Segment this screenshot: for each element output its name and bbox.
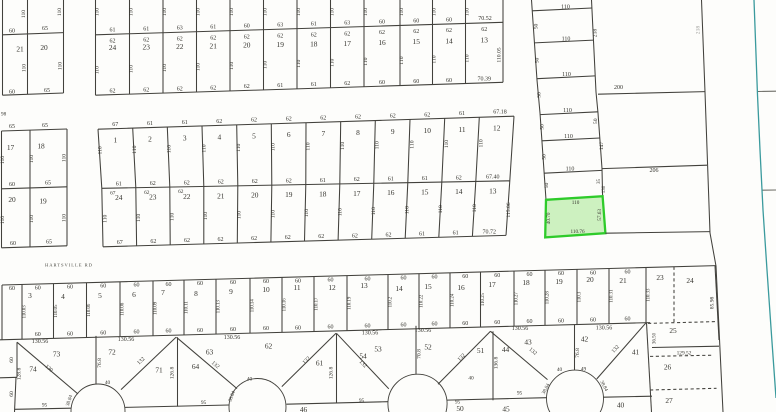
svg-text:21: 21: [619, 276, 627, 285]
svg-text:22: 22: [183, 192, 191, 201]
svg-text:3: 3: [183, 134, 187, 143]
svg-text:20: 20: [251, 191, 259, 200]
svg-text:19: 19: [39, 197, 47, 206]
svg-text:60: 60: [446, 17, 452, 23]
svg-text:52: 52: [424, 342, 432, 351]
svg-text:110: 110: [296, 8, 302, 16]
svg-text:110: 110: [363, 8, 369, 16]
svg-text:110: 110: [57, 8, 63, 16]
svg-text:23: 23: [143, 42, 151, 51]
svg-text:14: 14: [445, 36, 453, 45]
svg-text:62: 62: [218, 237, 224, 243]
svg-text:60: 60: [134, 330, 140, 336]
svg-text:60: 60: [590, 270, 596, 276]
svg-text:110: 110: [375, 141, 381, 149]
svg-text:95: 95: [201, 400, 207, 406]
svg-text:40.70: 40.70: [546, 212, 552, 224]
svg-text:110: 110: [304, 209, 310, 217]
svg-text:61: 61: [210, 25, 216, 31]
svg-text:62: 62: [216, 119, 222, 125]
svg-text:110: 110: [62, 214, 68, 222]
svg-text:23: 23: [656, 273, 664, 282]
svg-text:4: 4: [217, 132, 221, 141]
svg-text:50: 50: [537, 92, 543, 98]
svg-text:60: 60: [413, 18, 419, 24]
svg-text:110: 110: [399, 56, 405, 64]
svg-text:95: 95: [42, 402, 48, 408]
svg-text:60: 60: [263, 326, 269, 332]
svg-text:110: 110: [270, 210, 276, 218]
svg-text:110: 110: [438, 205, 444, 213]
svg-text:110: 110: [196, 8, 202, 16]
svg-text:65: 65: [9, 124, 15, 130]
svg-text:60: 60: [9, 28, 15, 34]
svg-text:60: 60: [432, 275, 438, 281]
svg-text:50: 50: [593, 118, 599, 124]
svg-text:23: 23: [149, 193, 157, 202]
svg-text:13: 13: [481, 35, 489, 44]
svg-text:76.8: 76.8: [575, 348, 581, 358]
svg-text:20: 20: [8, 195, 16, 204]
svg-text:110.06: 110.06: [87, 303, 92, 317]
svg-text:62: 62: [446, 28, 452, 34]
svg-text:40: 40: [468, 376, 474, 382]
svg-text:110: 110: [58, 62, 64, 70]
svg-text:17: 17: [7, 143, 15, 152]
svg-text:50: 50: [542, 154, 548, 160]
svg-text:60: 60: [9, 286, 15, 292]
svg-text:60: 60: [401, 323, 407, 329]
svg-text:5: 5: [98, 291, 102, 300]
svg-text:62: 62: [456, 175, 462, 181]
svg-text:62: 62: [413, 29, 419, 35]
svg-text:110: 110: [102, 215, 108, 223]
svg-text:110: 110: [237, 211, 243, 219]
svg-text:57.63: 57.63: [597, 209, 603, 221]
svg-text:27: 27: [665, 396, 673, 405]
svg-text:60: 60: [462, 274, 468, 280]
svg-text:62: 62: [110, 89, 116, 95]
svg-text:15: 15: [421, 188, 429, 197]
svg-text:61: 61: [277, 83, 283, 89]
svg-text:18: 18: [310, 39, 318, 48]
svg-text:110.13: 110.13: [217, 300, 222, 314]
svg-text:110: 110: [162, 64, 168, 72]
svg-text:1: 1: [113, 136, 117, 145]
svg-text:74: 74: [29, 365, 37, 374]
svg-text:62: 62: [386, 232, 392, 238]
svg-text:62: 62: [244, 84, 250, 90]
svg-text:110: 110: [129, 65, 135, 73]
svg-text:62: 62: [352, 233, 358, 239]
svg-text:62: 62: [177, 36, 183, 42]
svg-text:110: 110: [371, 207, 377, 215]
svg-text:15: 15: [424, 282, 432, 291]
svg-text:50: 50: [540, 124, 546, 130]
svg-text:110: 110: [563, 108, 572, 114]
svg-text:60: 60: [527, 272, 533, 278]
svg-text:130.56: 130.56: [118, 337, 135, 343]
svg-text:110: 110: [340, 142, 346, 150]
svg-text:50: 50: [534, 24, 540, 30]
svg-text:60: 60: [527, 319, 533, 325]
svg-text:110: 110: [229, 62, 235, 70]
svg-text:67: 67: [117, 240, 123, 246]
svg-text:60: 60: [263, 279, 269, 285]
svg-text:110: 110: [62, 154, 68, 162]
svg-text:70.8: 70.8: [416, 349, 422, 359]
svg-text:61: 61: [388, 177, 394, 183]
svg-text:65: 65: [42, 26, 48, 32]
svg-text:50: 50: [535, 58, 541, 64]
svg-text:62: 62: [150, 181, 156, 187]
svg-text:110.2: 110.2: [389, 296, 394, 307]
svg-text:110.24: 110.24: [451, 293, 456, 307]
svg-text:7: 7: [321, 129, 325, 138]
svg-text:70.72: 70.72: [482, 230, 496, 236]
svg-text:60: 60: [9, 182, 15, 188]
svg-text:65: 65: [44, 88, 50, 94]
svg-text:110: 110: [444, 140, 450, 148]
svg-text:110.25: 110.25: [481, 292, 486, 306]
svg-text:73: 73: [53, 350, 61, 359]
svg-text:62: 62: [143, 87, 149, 93]
svg-text:13: 13: [360, 281, 368, 290]
svg-text:62: 62: [184, 238, 190, 244]
svg-text:18: 18: [37, 142, 45, 151]
svg-text:61: 61: [116, 182, 122, 188]
svg-text:61: 61: [453, 230, 459, 236]
svg-text:110.31: 110.31: [610, 289, 615, 303]
svg-text:67.40: 67.40: [486, 175, 500, 181]
svg-text:14: 14: [455, 187, 463, 196]
svg-text:61: 61: [320, 178, 326, 184]
svg-text:21: 21: [217, 191, 225, 200]
svg-text:60: 60: [67, 285, 73, 291]
svg-text:17: 17: [344, 39, 352, 48]
svg-text:62: 62: [177, 86, 183, 92]
svg-text:9: 9: [229, 287, 233, 296]
svg-text:110: 110: [97, 146, 103, 154]
svg-text:110.28: 110.28: [546, 291, 551, 305]
svg-text:110: 110: [564, 134, 573, 140]
svg-text:110: 110: [95, 66, 101, 74]
svg-text:10: 10: [262, 285, 270, 294]
svg-text:61: 61: [459, 111, 465, 117]
svg-text:3: 3: [28, 291, 32, 300]
svg-text:60: 60: [166, 282, 172, 288]
svg-text:13: 13: [489, 186, 497, 195]
svg-text:110: 110: [170, 213, 176, 221]
svg-text:4: 4: [61, 292, 65, 301]
svg-text:62: 62: [252, 179, 258, 185]
svg-text:7: 7: [161, 288, 165, 297]
svg-text:62: 62: [265, 342, 273, 351]
svg-text:60: 60: [365, 277, 371, 283]
svg-text:67: 67: [112, 122, 118, 128]
svg-text:71: 71: [155, 365, 163, 374]
svg-text:60: 60: [230, 280, 236, 286]
svg-text:36.50: 36.50: [653, 332, 658, 344]
svg-text:63: 63: [206, 347, 214, 356]
svg-text:62: 62: [354, 177, 360, 183]
svg-text:129.52: 129.52: [677, 350, 692, 356]
svg-text:60: 60: [494, 273, 500, 279]
svg-text:110: 110: [305, 142, 311, 150]
svg-text:46: 46: [300, 405, 308, 412]
svg-text:60: 60: [35, 285, 41, 291]
svg-text:110: 110: [129, 8, 135, 16]
svg-text:16: 16: [387, 188, 395, 197]
svg-text:63: 63: [277, 23, 283, 29]
svg-text:62: 62: [244, 34, 250, 40]
svg-text:60: 60: [328, 325, 334, 331]
svg-text:130.56: 130.56: [596, 326, 613, 332]
svg-text:60: 60: [197, 281, 203, 287]
svg-text:110: 110: [409, 140, 415, 148]
svg-text:110.05: 110.05: [497, 47, 503, 62]
svg-text:110: 110: [472, 204, 478, 212]
svg-text:110: 110: [432, 55, 438, 63]
svg-text:126.8: 126.8: [329, 367, 335, 380]
svg-text:16: 16: [378, 38, 386, 47]
svg-text:42: 42: [581, 334, 589, 343]
svg-text:110: 110: [95, 8, 101, 16]
svg-text:19: 19: [555, 277, 563, 286]
svg-text:60: 60: [10, 241, 16, 247]
svg-text:61: 61: [311, 22, 317, 28]
svg-text:110: 110: [562, 36, 571, 42]
svg-text:63: 63: [344, 21, 350, 27]
svg-text:24: 24: [686, 276, 694, 285]
svg-text:61: 61: [419, 231, 425, 237]
svg-text:110: 110: [405, 206, 411, 214]
svg-text:110.22: 110.22: [420, 294, 425, 308]
svg-text:12: 12: [493, 124, 501, 133]
svg-text:53: 53: [374, 345, 382, 354]
svg-text:110: 110: [566, 167, 575, 173]
svg-text:10: 10: [424, 126, 432, 135]
svg-text:218: 218: [696, 26, 702, 35]
svg-text:61: 61: [422, 176, 428, 182]
svg-text:62: 62: [344, 31, 350, 37]
svg-text:110.33: 110.33: [647, 288, 652, 302]
svg-text:21: 21: [210, 41, 218, 50]
svg-text:60: 60: [230, 327, 236, 333]
svg-text:60: 60: [295, 278, 301, 284]
svg-text:110: 110: [0, 156, 6, 164]
svg-text:61: 61: [110, 28, 116, 34]
svg-text:60: 60: [67, 331, 73, 337]
svg-text:60: 60: [401, 276, 407, 282]
svg-text:110: 110: [236, 144, 242, 152]
svg-text:9: 9: [391, 127, 395, 136]
svg-text:60: 60: [244, 24, 250, 30]
svg-text:110.3: 110.3: [578, 291, 583, 302]
svg-text:14: 14: [395, 284, 403, 293]
svg-text:130.56: 130.56: [415, 328, 432, 334]
svg-text:110: 110: [572, 200, 580, 206]
svg-text:2: 2: [148, 135, 152, 144]
svg-text:18: 18: [522, 278, 530, 287]
svg-text:22: 22: [176, 42, 184, 51]
svg-text:61: 61: [147, 121, 153, 127]
svg-text:110: 110: [465, 54, 471, 62]
svg-text:54: 54: [359, 352, 367, 361]
svg-text:110.76: 110.76: [570, 229, 584, 235]
svg-text:65: 65: [45, 180, 51, 186]
svg-text:98: 98: [1, 112, 7, 118]
svg-text:40: 40: [557, 367, 563, 373]
svg-text:40: 40: [617, 400, 625, 409]
svg-text:60: 60: [35, 332, 41, 338]
svg-text:110: 110: [271, 143, 277, 151]
svg-text:110: 110: [29, 215, 35, 223]
svg-text:60: 60: [625, 317, 631, 323]
svg-text:21: 21: [16, 45, 24, 54]
svg-text:45: 45: [502, 405, 510, 412]
svg-text:206: 206: [650, 168, 659, 174]
svg-text:62: 62: [286, 179, 292, 185]
svg-text:50: 50: [456, 404, 464, 412]
svg-text:51: 51: [477, 346, 485, 355]
svg-text:110.27: 110.27: [515, 292, 520, 306]
svg-text:62: 62: [210, 85, 216, 91]
svg-text:110: 110: [21, 10, 27, 18]
svg-text:19: 19: [285, 190, 293, 199]
svg-text:110: 110: [132, 145, 138, 153]
svg-text:110.05: 110.05: [54, 304, 59, 318]
svg-text:15: 15: [413, 37, 421, 46]
svg-text:72: 72: [108, 347, 116, 356]
svg-text:110: 110: [29, 155, 35, 163]
svg-text:62: 62: [424, 112, 430, 118]
svg-text:70.39: 70.39: [477, 77, 491, 83]
svg-text:110: 110: [196, 63, 202, 71]
svg-text:17: 17: [353, 189, 361, 198]
svg-text:95: 95: [359, 398, 365, 404]
svg-text:62: 62: [110, 39, 116, 45]
svg-text:65: 65: [46, 240, 52, 246]
svg-text:110.17: 110.17: [315, 297, 320, 311]
svg-text:110: 110: [479, 139, 485, 147]
svg-text:115.06: 115.06: [506, 202, 512, 217]
svg-text:35: 35: [597, 179, 602, 185]
svg-text:110.16: 110.16: [283, 298, 288, 312]
svg-text:62: 62: [390, 113, 396, 119]
svg-text:110: 110: [229, 8, 235, 16]
svg-text:62: 62: [150, 239, 156, 245]
svg-text:25: 25: [669, 326, 677, 335]
svg-text:110: 110: [203, 212, 209, 220]
svg-text:130: 130: [602, 185, 607, 193]
svg-text:110: 110: [263, 8, 269, 16]
svg-text:60: 60: [9, 391, 15, 397]
svg-text:62: 62: [344, 81, 350, 87]
svg-text:70.52: 70.52: [478, 16, 492, 22]
svg-text:110: 110: [263, 61, 269, 69]
svg-text:60: 60: [558, 271, 564, 277]
svg-text:62: 62: [311, 32, 317, 38]
svg-text:67.18: 67.18: [493, 110, 507, 116]
svg-text:61: 61: [316, 358, 324, 367]
svg-text:62: 62: [481, 27, 487, 33]
svg-text:60: 60: [446, 78, 452, 84]
svg-text:5: 5: [252, 131, 256, 140]
svg-text:41: 41: [632, 347, 640, 356]
svg-text:110.11: 110.11: [185, 301, 190, 314]
svg-text:65: 65: [42, 123, 48, 129]
svg-text:110: 110: [562, 72, 571, 78]
svg-text:110.14: 110.14: [251, 299, 256, 313]
svg-text:110: 110: [296, 60, 302, 68]
svg-text:61: 61: [311, 82, 317, 88]
svg-text:6: 6: [287, 130, 291, 139]
svg-text:110.09: 110.09: [154, 301, 159, 315]
svg-text:76.8: 76.8: [97, 358, 103, 368]
svg-text:12: 12: [328, 283, 336, 292]
svg-text:20: 20: [40, 43, 48, 52]
svg-text:85.98: 85.98: [710, 297, 716, 310]
svg-text:218: 218: [593, 29, 599, 38]
svg-text:130.56: 130.56: [224, 335, 241, 341]
svg-text:20: 20: [243, 40, 251, 49]
svg-text:62: 62: [143, 37, 149, 43]
svg-text:60: 60: [413, 79, 419, 85]
svg-text:6: 6: [132, 290, 136, 299]
svg-text:60: 60: [432, 322, 438, 328]
svg-text:110: 110: [162, 8, 168, 16]
svg-text:18: 18: [319, 189, 327, 198]
svg-text:60: 60: [100, 331, 106, 337]
svg-text:60: 60: [625, 269, 631, 275]
svg-text:110: 110: [167, 145, 173, 153]
svg-text:50: 50: [544, 183, 550, 189]
svg-text:110: 110: [136, 214, 142, 222]
svg-text:147: 147: [599, 142, 605, 151]
svg-text:60: 60: [197, 328, 203, 334]
svg-text:128.8: 128.8: [17, 368, 23, 381]
svg-text:110.03: 110.03: [23, 305, 28, 319]
svg-text:110.08: 110.08: [121, 302, 126, 316]
svg-text:110: 110: [363, 57, 369, 65]
svg-text:95: 95: [517, 390, 523, 396]
svg-text:110: 110: [399, 8, 405, 16]
svg-text:62: 62: [251, 118, 257, 124]
svg-text:62: 62: [379, 30, 385, 36]
svg-text:60: 60: [365, 324, 371, 330]
svg-text:62: 62: [251, 236, 257, 242]
svg-text:60: 60: [494, 320, 500, 326]
svg-text:60: 60: [134, 283, 140, 289]
svg-text:62: 62: [218, 180, 224, 186]
svg-text:63: 63: [177, 26, 183, 32]
svg-text:110: 110: [465, 8, 471, 16]
svg-text:16: 16: [457, 283, 465, 292]
svg-text:110: 110: [22, 64, 28, 72]
svg-text:130.56: 130.56: [32, 339, 49, 345]
svg-text:8: 8: [194, 289, 198, 298]
svg-text:24: 24: [115, 193, 123, 202]
svg-text:136.8: 136.8: [493, 357, 499, 370]
svg-text:62: 62: [184, 180, 190, 186]
svg-text:62: 62: [286, 117, 292, 123]
svg-text:43: 43: [524, 337, 532, 346]
svg-text:64: 64: [192, 362, 200, 371]
svg-text:110: 110: [0, 216, 6, 224]
svg-text:60: 60: [9, 357, 15, 363]
svg-text:60: 60: [379, 19, 385, 25]
